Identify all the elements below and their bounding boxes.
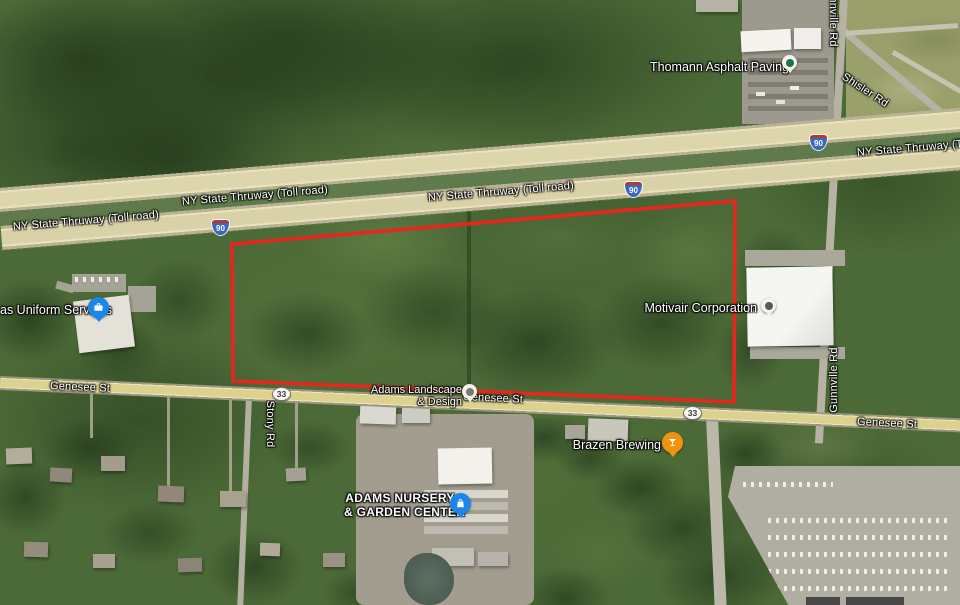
cocktail-glass-icon: [666, 436, 679, 449]
place-pin-uniform-briefcase-icon[interactable]: [88, 297, 109, 318]
place-label-adams-landscape[interactable]: Adams Landscape & Design: [342, 385, 462, 408]
place-pin-thomann[interactable]: [782, 55, 797, 70]
road-label-gunnville: Gunnville Rd: [827, 0, 839, 56]
route-33-shield: 33: [683, 406, 702, 420]
parcel-outline-overlay: [0, 0, 960, 605]
place-label-motivair[interactable]: Motivair Corporation: [637, 301, 757, 315]
satellite-map-canvas[interactable]: 90 90 90 33 33 NY State Thruway (Toll ro…: [0, 0, 960, 605]
place-pin-motivair[interactable]: [761, 298, 776, 313]
place-label-line: ADAMS NURSERY: [344, 492, 456, 506]
place-label-brazen-brewing[interactable]: Brazen Brewing: [541, 438, 661, 452]
briefcase-icon: [92, 301, 105, 314]
road-label-stony: Stony Rd: [264, 396, 276, 452]
map-attribution-bar: [846, 597, 904, 605]
place-label-adams-nursery[interactable]: ADAMS NURSERY & GARDEN CENTER: [344, 492, 456, 519]
place-label-line: & GARDEN CENTER: [344, 506, 456, 520]
place-pin-adams-landscape[interactable]: [462, 384, 477, 399]
place-pin-nursery-shopping-icon[interactable]: [450, 493, 471, 514]
shopping-bag-icon: [454, 497, 467, 510]
place-label-thomann[interactable]: Thomann Asphalt Paving: [650, 60, 778, 74]
place-label-line: Adams Landscape: [342, 385, 462, 397]
place-label-line: & Design: [342, 397, 462, 409]
map-attribution-bar: [806, 597, 840, 605]
place-pin-brazen-bar-icon[interactable]: [662, 432, 683, 453]
road-label-gunnville: Gunnville Rd: [828, 338, 840, 422]
